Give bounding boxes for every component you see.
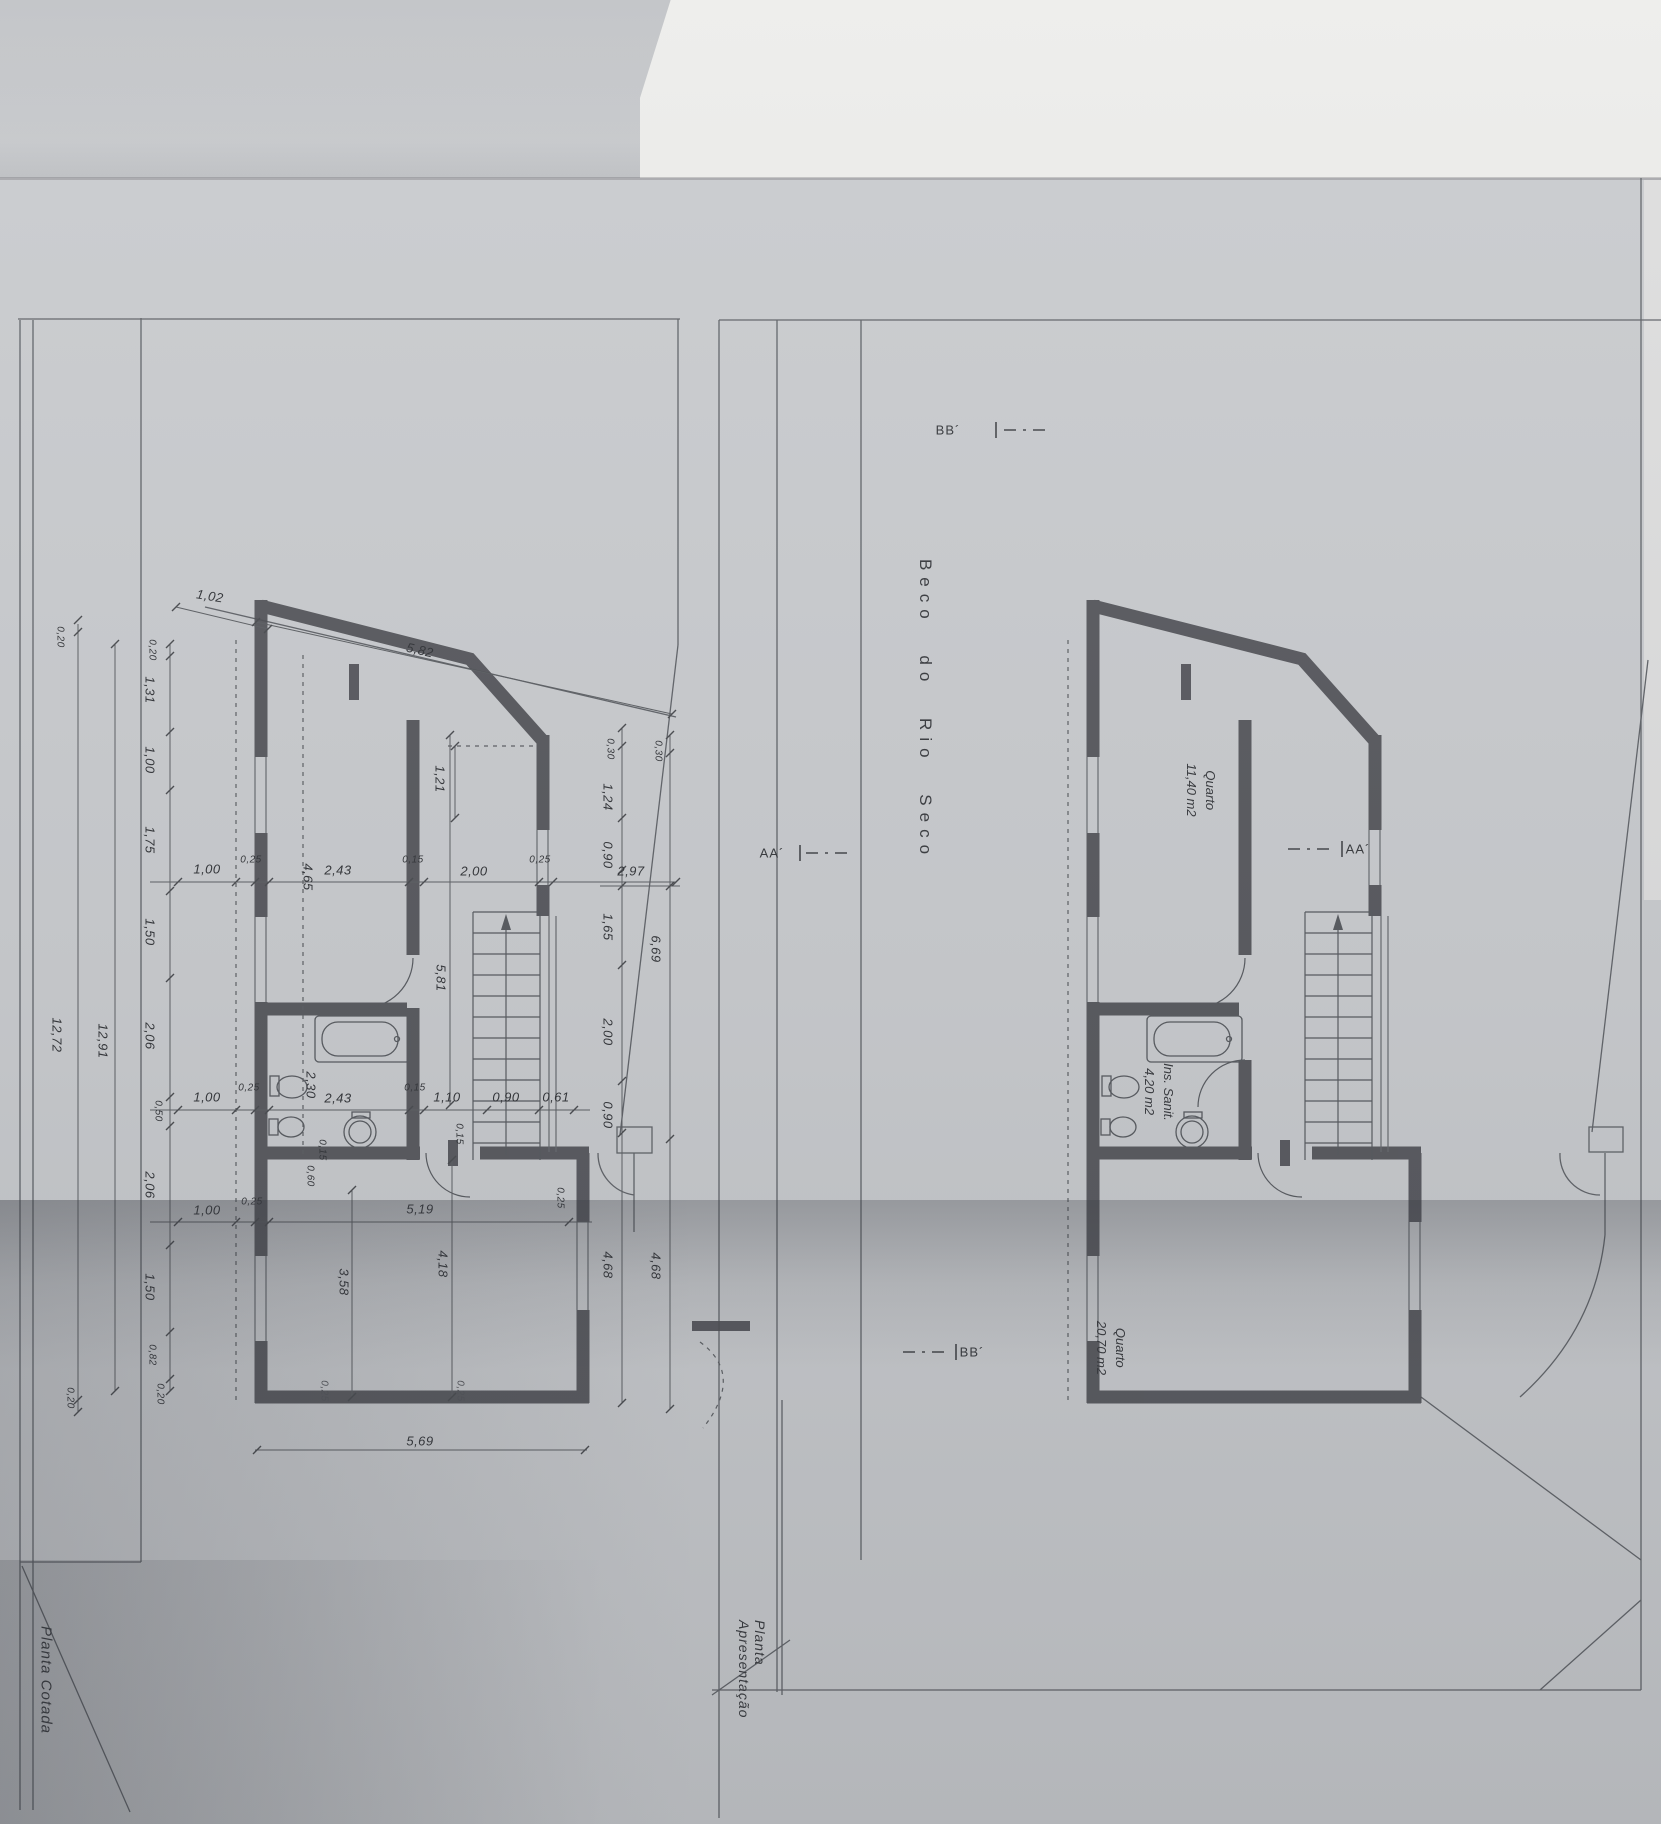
dim-label: 0,20 [155,1383,166,1404]
dim-label: 1,65 [601,913,616,940]
dim-label: 1,21 [433,765,448,792]
dim-label: 0,15 [404,1083,425,1094]
dim-label: 5,19 [406,1202,433,1217]
street-name: Beco do Rio Seco [915,559,935,861]
dim-label: 4,68 [601,1251,616,1278]
dim-label: 2,43 [324,1091,351,1106]
dim-label: 4,18 [436,1250,451,1277]
dim-label: 1,50 [143,918,158,945]
room-area: 11,40 m2 [1181,763,1200,816]
dim-label: 0,61 [542,1090,569,1105]
dim-label: 0,25 [238,1083,259,1094]
dim-label: 0,25 [455,1380,466,1401]
room-name: Quarto [1200,763,1219,816]
room-name: Ins. Sanit. [1158,1063,1177,1121]
dim-label: 1,00 [193,862,220,877]
dim-label: 2,97 [617,864,644,879]
dim-label: 0,25 [241,1197,262,1208]
room-area: 20,70 m2 [1091,1321,1110,1375]
dim-label: 0,90 [492,1090,519,1105]
dim-label: 0,20 [147,639,158,660]
dim-label: 0,25 [240,855,261,866]
scanned-floor-plan-sheet: Planta Cotada Planta Apresentação Beco d… [0,0,1661,1824]
dim-label: 0,90 [601,841,616,868]
dim-label: 1,31 [143,676,158,703]
dim-label: 1,00 [143,746,158,773]
dim-label: 2,30 [304,1071,319,1098]
dim-label: 2,00 [460,864,487,879]
dim-label: 1,00 [193,1203,220,1218]
dim-label: 0,30 [605,738,616,759]
dim-label: 0,90 [601,1101,616,1128]
dim-label: 1,75 [143,826,158,853]
dim-label: 0,50 [153,1100,164,1121]
dim-label: 0,82 [147,1344,158,1365]
dim-label: 0,15 [454,1123,465,1144]
room-name: Quarto [1110,1321,1129,1375]
dim-label-total: 12,72 [50,1017,65,1052]
dim-label: 0,25 [555,1187,566,1208]
floor-plan-drawing [0,0,1661,1824]
dim-label: 0,25 [319,1380,330,1401]
dim-label: 0,30 [653,740,664,761]
section-marker-bb-bottom: BB´ [960,1345,985,1360]
dim-label: 0,20 [65,1387,76,1408]
dim-label: 1,10 [433,1090,460,1105]
room-area: 4,20 m2 [1139,1063,1158,1121]
room-label-bath: Ins. Sanit. 4,20 m2 [1139,1063,1177,1121]
section-marker-bb-top: BB´ [936,423,961,438]
dim-label: 2,06 [143,1022,158,1049]
plan-title-right: Planta Apresentação [736,1620,768,1756]
dim-label: 0,15 [317,1139,328,1160]
dim-label: 1,50 [143,1273,158,1300]
room-label-bedroom2: Quarto 20,70 m2 [1091,1321,1129,1375]
dim-label: 1,24 [601,783,616,810]
plan-title-left: Planta Cotada [38,1626,55,1734]
dim-label: 2,43 [324,863,351,878]
dim-label: 4,68 [649,1252,664,1279]
dim-label: 1,00 [193,1090,220,1105]
dim-label: 4,65 [301,863,316,890]
dim-label: 0,25 [529,855,550,866]
section-marker-aa-left: AA´ [760,846,785,861]
room-label-bedroom1: Quarto 11,40 m2 [1181,763,1219,816]
dim-label: 5,69 [406,1434,433,1449]
dim-label: 2,06 [143,1171,158,1198]
dim-label: 2,00 [601,1018,616,1045]
dim-label: 0,15 [402,855,423,866]
section-marker-aa-right: AA´ [1346,842,1371,857]
dim-label: 3,58 [337,1268,352,1295]
dim-label: 0,60 [305,1165,316,1186]
dim-label: 5,81 [434,964,449,991]
dim-label-total: 12,91 [96,1023,111,1058]
dim-label: 6,69 [649,935,664,962]
dim-label: 0,20 [55,626,66,647]
